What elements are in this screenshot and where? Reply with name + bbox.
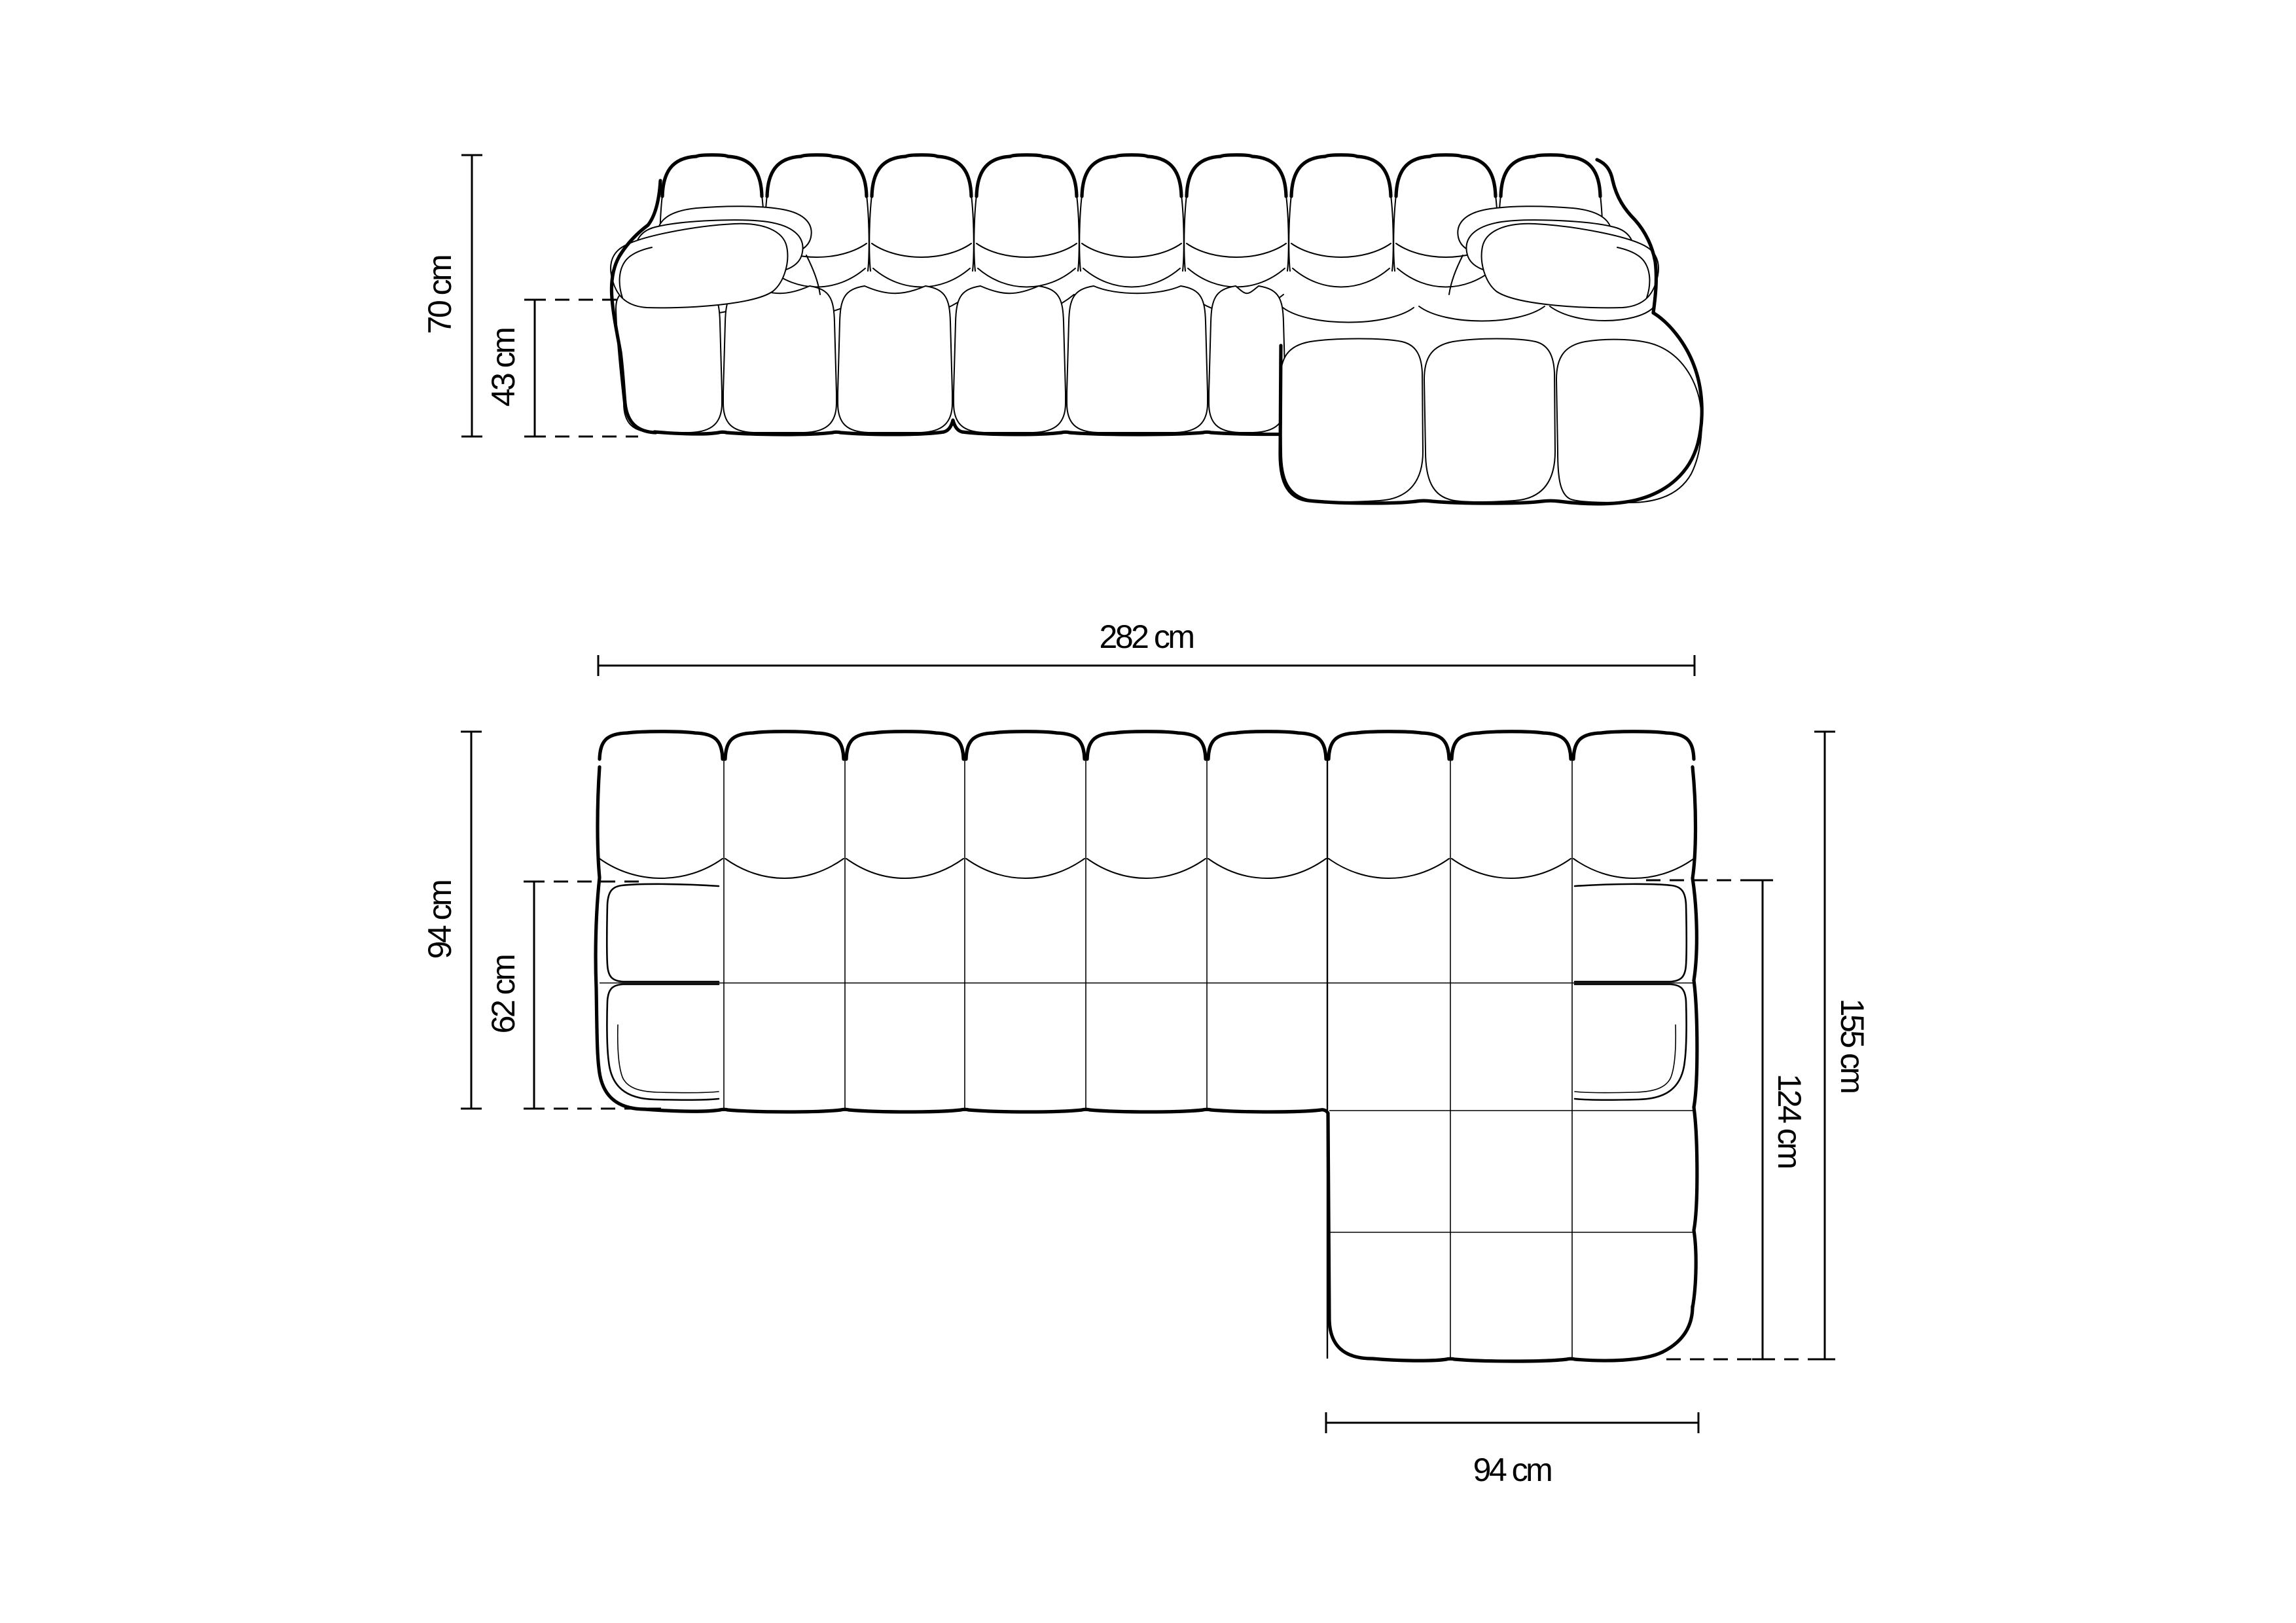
svg-text:62 cm: 62 cm	[485, 955, 522, 1034]
svg-text:43 cm: 43 cm	[485, 329, 522, 407]
svg-text:70 cm: 70 cm	[422, 256, 458, 334]
svg-text:94 cm: 94 cm	[422, 881, 458, 959]
svg-text:155 cm: 155 cm	[1834, 999, 1871, 1093]
svg-text:282 cm: 282 cm	[1100, 618, 1194, 655]
svg-text:94 cm: 94 cm	[1473, 1452, 1552, 1488]
svg-text:124 cm: 124 cm	[1771, 1074, 1808, 1168]
